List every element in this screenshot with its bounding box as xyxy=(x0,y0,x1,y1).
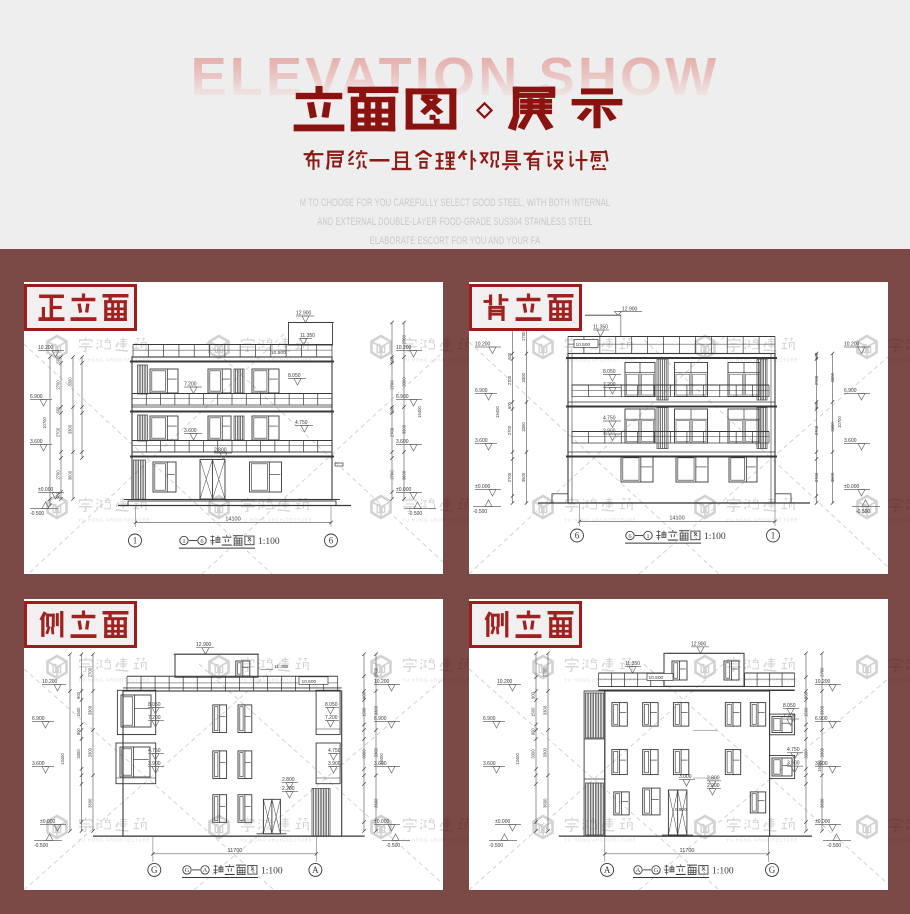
svg-text:-0.500: -0.500 xyxy=(386,843,400,849)
svg-text:2700: 2700 xyxy=(507,472,512,482)
svg-text:1:100: 1:100 xyxy=(261,866,283,876)
svg-text:-0.500: -0.500 xyxy=(856,509,870,515)
svg-text:3300: 3300 xyxy=(402,424,407,434)
svg-text:600: 600 xyxy=(814,352,819,360)
svg-text:3300: 3300 xyxy=(374,705,379,715)
svg-text:2700: 2700 xyxy=(56,470,61,480)
svg-text:3.600: 3.600 xyxy=(815,761,828,767)
svg-text:6.900: 6.900 xyxy=(483,716,496,722)
svg-text:1: 1 xyxy=(133,536,138,546)
svg-text:3300: 3300 xyxy=(88,747,93,757)
svg-text:3600: 3600 xyxy=(68,470,73,480)
svg-text:1: 1 xyxy=(646,533,649,540)
svg-text:2700: 2700 xyxy=(374,667,379,677)
svg-text:10.200: 10.200 xyxy=(475,342,491,348)
svg-text:3600: 3600 xyxy=(830,472,835,482)
svg-text:±0.000: ±0.000 xyxy=(38,487,53,493)
svg-text:14100: 14100 xyxy=(669,515,684,521)
svg-text:8.050: 8.050 xyxy=(603,369,616,375)
svg-text:3.000: 3.000 xyxy=(679,774,692,780)
svg-text:-0.500: -0.500 xyxy=(489,843,503,849)
svg-text:1: 1 xyxy=(182,538,185,545)
svg-text:900: 900 xyxy=(531,691,536,699)
svg-text:1: 1 xyxy=(771,531,776,541)
svg-text:3300: 3300 xyxy=(543,747,548,757)
svg-text:2700: 2700 xyxy=(814,375,819,385)
svg-text:11.350: 11.350 xyxy=(274,664,289,670)
svg-text:G: G xyxy=(769,865,776,875)
svg-text:2700: 2700 xyxy=(521,331,526,341)
svg-text:600: 600 xyxy=(507,401,512,409)
svg-text:11.350: 11.350 xyxy=(593,325,608,331)
svg-text:4.750: 4.750 xyxy=(295,420,308,426)
svg-text:6.900: 6.900 xyxy=(30,394,43,400)
svg-text:3300: 3300 xyxy=(88,705,93,715)
svg-text:±0.000: ±0.000 xyxy=(815,819,830,825)
svg-text:2700: 2700 xyxy=(402,334,407,344)
svg-text:2700: 2700 xyxy=(814,472,819,482)
svg-text:6.900: 6.900 xyxy=(815,716,828,722)
svg-text:10.200: 10.200 xyxy=(497,679,513,685)
svg-text:3600: 3600 xyxy=(402,470,407,480)
svg-text:3300: 3300 xyxy=(76,749,81,759)
svg-text:2700: 2700 xyxy=(820,667,825,677)
svg-text:A: A xyxy=(312,865,319,875)
svg-text:2700: 2700 xyxy=(814,425,819,435)
svg-text:2700: 2700 xyxy=(507,375,512,385)
svg-text:8.050: 8.050 xyxy=(325,702,338,708)
svg-text:11.350: 11.350 xyxy=(300,333,315,339)
svg-text:600: 600 xyxy=(56,406,61,414)
svg-text:±0.000: ±0.000 xyxy=(495,819,510,825)
svg-text:6.900: 6.900 xyxy=(396,394,409,400)
svg-text:2700: 2700 xyxy=(56,427,61,437)
svg-text:900: 900 xyxy=(362,691,367,699)
svg-text:2700: 2700 xyxy=(390,470,395,480)
svg-text:2700: 2700 xyxy=(543,667,548,677)
svg-text:10.200: 10.200 xyxy=(396,345,412,351)
svg-text:3.600: 3.600 xyxy=(374,761,387,767)
svg-text:6: 6 xyxy=(200,538,204,545)
svg-text:3300: 3300 xyxy=(68,377,73,387)
svg-text:900: 900 xyxy=(76,691,81,699)
svg-text:3.900: 3.900 xyxy=(328,761,341,767)
svg-text:7.200: 7.200 xyxy=(148,715,161,721)
svg-text:14100: 14100 xyxy=(225,517,240,523)
svg-text:600: 600 xyxy=(56,356,61,364)
svg-text:3.600: 3.600 xyxy=(32,761,45,767)
svg-text:4.750: 4.750 xyxy=(148,748,161,754)
svg-text:10700: 10700 xyxy=(42,417,47,429)
svg-text:7.200: 7.200 xyxy=(325,715,338,721)
svg-text:7.200: 7.200 xyxy=(603,382,616,388)
svg-text:A: A xyxy=(636,867,641,874)
svg-text:2.800: 2.800 xyxy=(282,777,295,783)
svg-text:3.900: 3.900 xyxy=(603,429,616,435)
svg-text:3300: 3300 xyxy=(830,422,835,432)
svg-text:-0.500: -0.500 xyxy=(827,843,841,849)
svg-text:10.200: 10.200 xyxy=(42,679,58,685)
svg-text:8.050: 8.050 xyxy=(288,373,301,379)
svg-text:3300: 3300 xyxy=(804,749,809,759)
svg-text:10.500: 10.500 xyxy=(649,675,664,681)
svg-text:6.900: 6.900 xyxy=(475,388,488,394)
svg-text:15400: 15400 xyxy=(417,406,422,418)
svg-text:2700: 2700 xyxy=(88,667,93,677)
svg-text:2700: 2700 xyxy=(390,380,395,390)
svg-text:3300: 3300 xyxy=(521,422,526,432)
svg-text:6: 6 xyxy=(329,536,334,546)
svg-text:3300: 3300 xyxy=(402,377,407,387)
svg-text:6.900: 6.900 xyxy=(374,716,387,722)
svg-text:10.500: 10.500 xyxy=(271,350,286,356)
svg-text:3300: 3300 xyxy=(830,372,835,382)
svg-text:3.600: 3.600 xyxy=(475,438,488,444)
svg-text:4.750: 4.750 xyxy=(603,416,616,422)
svg-text:±0.000: ±0.000 xyxy=(844,484,859,490)
svg-text:1500: 1500 xyxy=(362,707,367,717)
svg-text:6.900: 6.900 xyxy=(32,716,45,722)
svg-text:-0.500: -0.500 xyxy=(34,843,48,849)
svg-text:A: A xyxy=(604,865,611,875)
svg-text:-0.500: -0.500 xyxy=(473,509,487,515)
svg-text:6.900: 6.900 xyxy=(844,388,857,394)
svg-text:3300: 3300 xyxy=(521,372,526,382)
svg-text:3600: 3600 xyxy=(521,472,526,482)
svg-text:G: G xyxy=(185,867,190,874)
svg-text:4.750: 4.750 xyxy=(328,748,341,754)
svg-text:10.200: 10.200 xyxy=(38,345,54,351)
svg-text:2.200: 2.200 xyxy=(707,783,720,789)
svg-text:3300: 3300 xyxy=(820,705,825,715)
svg-text:2700: 2700 xyxy=(56,380,61,390)
svg-text:G: G xyxy=(654,867,659,874)
svg-text:4.750: 4.750 xyxy=(787,747,800,753)
svg-text:10.500: 10.500 xyxy=(302,679,317,685)
svg-text:3300: 3300 xyxy=(820,747,825,757)
svg-text:-0.500: -0.500 xyxy=(408,511,422,517)
svg-text:600: 600 xyxy=(814,401,819,409)
svg-text:2700: 2700 xyxy=(507,425,512,435)
svg-text:10.500: 10.500 xyxy=(576,342,591,348)
svg-text:3300: 3300 xyxy=(374,747,379,757)
svg-text:1:100: 1:100 xyxy=(704,532,726,542)
svg-text:600: 600 xyxy=(507,352,512,360)
svg-text:3600: 3600 xyxy=(88,798,93,808)
svg-text:6: 6 xyxy=(628,533,632,540)
svg-text:3300: 3300 xyxy=(543,705,548,715)
svg-text:3.900: 3.900 xyxy=(148,761,161,767)
svg-text:2.800: 2.800 xyxy=(214,448,227,454)
svg-text:0.900: 0.900 xyxy=(675,807,687,812)
svg-text:15400: 15400 xyxy=(495,406,500,418)
svg-text:11700: 11700 xyxy=(228,848,243,854)
svg-text:1500: 1500 xyxy=(76,707,81,717)
svg-text:12.900: 12.900 xyxy=(296,311,312,317)
svg-text:3600: 3600 xyxy=(374,798,379,808)
svg-text:13400: 13400 xyxy=(60,753,65,765)
svg-text:±0.000: ±0.000 xyxy=(40,819,55,825)
svg-text:3.900: 3.900 xyxy=(787,761,800,767)
svg-text:A: A xyxy=(203,867,208,874)
svg-text:11.350: 11.350 xyxy=(625,661,640,667)
svg-text:900: 900 xyxy=(76,728,81,736)
svg-text:600: 600 xyxy=(390,356,395,364)
svg-text:±0.000: ±0.000 xyxy=(374,819,389,825)
svg-text:1500: 1500 xyxy=(804,707,809,717)
svg-text:10.200: 10.200 xyxy=(844,342,860,348)
svg-text:11700: 11700 xyxy=(680,848,695,854)
svg-text:3300: 3300 xyxy=(531,749,536,759)
svg-text:10.200: 10.200 xyxy=(815,679,831,685)
svg-text:900: 900 xyxy=(804,691,809,699)
svg-text:3600: 3600 xyxy=(543,798,548,808)
svg-text:6: 6 xyxy=(575,531,580,541)
svg-text:2.800: 2.800 xyxy=(707,775,720,781)
svg-text:8.050: 8.050 xyxy=(148,702,161,708)
svg-text:7.200: 7.200 xyxy=(783,714,796,720)
svg-text:12.900: 12.900 xyxy=(691,641,707,647)
svg-text:3.600: 3.600 xyxy=(30,439,43,445)
svg-text:3.600: 3.600 xyxy=(483,761,496,767)
svg-text:3.600: 3.600 xyxy=(844,438,857,444)
svg-text:-0.500: -0.500 xyxy=(30,511,44,517)
svg-text:2.200: 2.200 xyxy=(282,786,295,792)
svg-text:±0.000: ±0.000 xyxy=(475,484,490,490)
svg-text:12.900: 12.900 xyxy=(196,642,212,648)
svg-text:900: 900 xyxy=(531,728,536,736)
svg-text:G: G xyxy=(151,865,158,875)
svg-text:3300: 3300 xyxy=(362,749,367,759)
svg-text:1:100: 1:100 xyxy=(712,866,734,876)
svg-text:3600: 3600 xyxy=(820,798,825,808)
svg-text:3.600: 3.600 xyxy=(396,439,409,445)
svg-text:600: 600 xyxy=(390,406,395,414)
svg-text:2700: 2700 xyxy=(390,427,395,437)
svg-text:3.600: 3.600 xyxy=(184,428,197,434)
svg-text:±0.000: ±0.000 xyxy=(396,487,411,493)
svg-text:10.200: 10.200 xyxy=(374,679,390,685)
svg-text:13400: 13400 xyxy=(515,753,520,765)
svg-text:10700: 10700 xyxy=(837,416,842,428)
svg-text:1500: 1500 xyxy=(531,707,536,717)
svg-text:8.050: 8.050 xyxy=(783,703,796,709)
svg-text:1:100: 1:100 xyxy=(258,537,280,547)
svg-text:7.200: 7.200 xyxy=(184,382,197,388)
svg-text:3300: 3300 xyxy=(68,424,73,434)
